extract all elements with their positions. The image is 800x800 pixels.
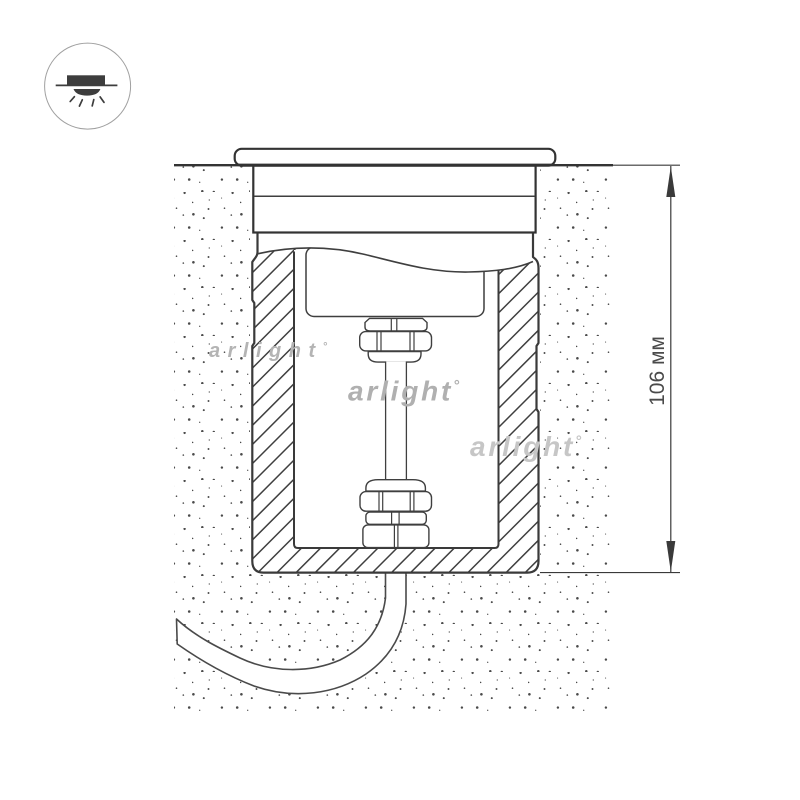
svg-text:arlight°: arlight° bbox=[348, 376, 462, 407]
svg-text:arlight°: arlight° bbox=[470, 431, 584, 462]
svg-text:arlight°: arlight° bbox=[209, 340, 335, 362]
svg-text:106 мм: 106 мм bbox=[646, 336, 669, 406]
